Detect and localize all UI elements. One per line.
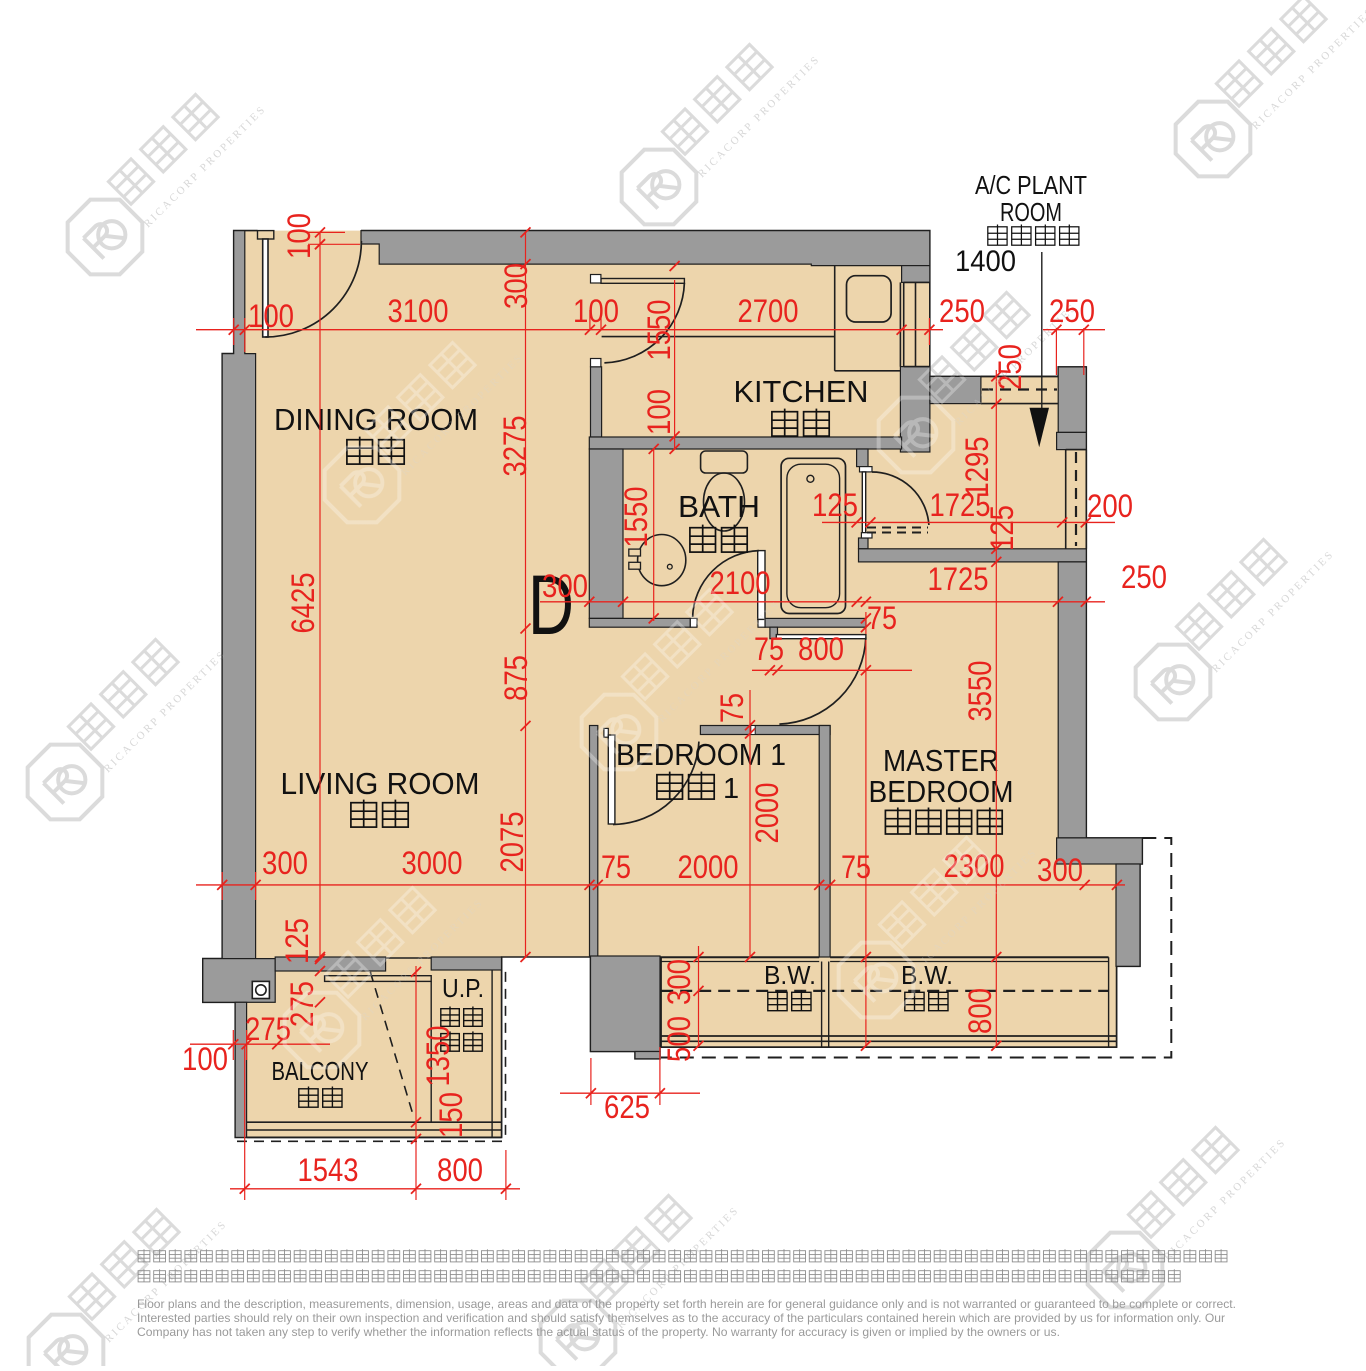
svg-text:2075: 2075 (494, 812, 530, 873)
svg-text:2700: 2700 (738, 293, 799, 329)
svg-text:300: 300 (1037, 852, 1083, 888)
svg-text:100: 100 (641, 389, 677, 435)
svg-text:1550: 1550 (641, 300, 677, 361)
svg-text:500: 500 (661, 1016, 697, 1062)
svg-text:U.P.: U.P. (442, 973, 484, 1003)
svg-text:300: 300 (661, 959, 697, 1005)
svg-text:125: 125 (812, 487, 858, 523)
svg-text:2000: 2000 (678, 849, 739, 885)
svg-text:75: 75 (754, 631, 784, 667)
svg-text:BEDROOM 1: BEDROOM 1 (616, 737, 786, 772)
svg-text:100: 100 (573, 293, 619, 329)
svg-text:ROOM: ROOM (1000, 197, 1062, 227)
svg-text:3275: 3275 (497, 416, 533, 477)
svg-text:3000: 3000 (402, 845, 463, 881)
svg-text:150: 150 (433, 1092, 469, 1138)
svg-text:300: 300 (262, 845, 308, 881)
svg-text:BATH: BATH (678, 489, 760, 524)
svg-text:1550: 1550 (618, 487, 654, 548)
svg-text:100: 100 (248, 298, 294, 334)
svg-text:1543: 1543 (298, 1152, 359, 1188)
svg-text:3550: 3550 (962, 661, 998, 722)
svg-text:125: 125 (279, 918, 315, 964)
svg-text:250: 250 (1049, 293, 1095, 329)
svg-text:A/C PLANT: A/C PLANT (975, 170, 1087, 200)
svg-text:2100: 2100 (710, 565, 771, 601)
svg-text:1350: 1350 (420, 1026, 456, 1087)
svg-text:KITCHEN: KITCHEN (734, 374, 869, 409)
svg-text:Interested parties should rely: Interested parties should rely on their … (137, 1311, 1225, 1325)
svg-text:LIVING ROOM: LIVING ROOM (281, 766, 480, 801)
svg-text:6425: 6425 (285, 573, 321, 634)
svg-text:75: 75 (841, 849, 871, 885)
svg-text:250: 250 (1121, 559, 1167, 595)
svg-text:100: 100 (182, 1041, 228, 1077)
svg-text:3100: 3100 (388, 293, 449, 329)
svg-text:75: 75 (714, 693, 750, 723)
svg-text:300: 300 (498, 263, 534, 309)
svg-text:300: 300 (542, 568, 588, 604)
svg-text:BALCONY: BALCONY (272, 1056, 369, 1086)
svg-text:250: 250 (939, 293, 985, 329)
svg-text:B.W.: B.W. (764, 960, 816, 990)
svg-text:2000: 2000 (749, 783, 785, 844)
svg-text:MASTER: MASTER (883, 743, 999, 778)
svg-text:125: 125 (984, 505, 1020, 551)
svg-text:800: 800 (798, 631, 844, 667)
svg-text:Floor plans and the descriptio: Floor plans and the description, measure… (137, 1297, 1236, 1311)
svg-text:800: 800 (962, 988, 998, 1034)
svg-text:1295: 1295 (959, 437, 995, 498)
svg-text:625: 625 (604, 1089, 650, 1125)
svg-text:1725: 1725 (928, 561, 989, 597)
svg-text:1: 1 (723, 773, 739, 805)
svg-text:75: 75 (601, 849, 631, 885)
svg-text:Company has not taken any step: Company has not taken any step to verify… (137, 1325, 1060, 1339)
svg-text:1400: 1400 (955, 245, 1016, 278)
svg-text:800: 800 (437, 1152, 483, 1188)
svg-text:100: 100 (281, 213, 317, 259)
svg-text:BEDROOM: BEDROOM (869, 774, 1014, 809)
svg-text:75: 75 (867, 600, 897, 636)
svg-text:875: 875 (498, 655, 534, 701)
svg-text:200: 200 (1087, 488, 1133, 524)
